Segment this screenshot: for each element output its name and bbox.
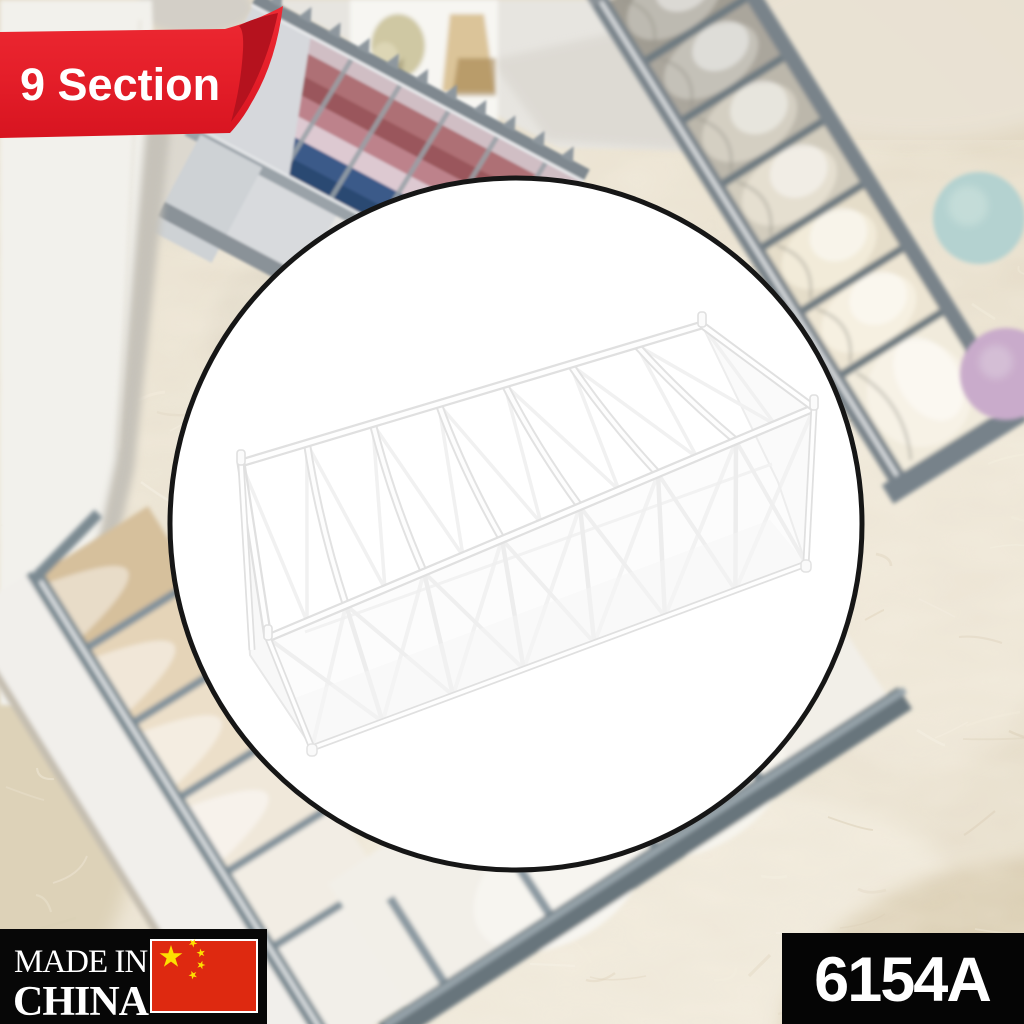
svg-text:9 Section: 9 Section <box>20 59 220 110</box>
svg-text:6154A: 6154A <box>814 945 990 1015</box>
svg-text:MADE IN: MADE IN <box>14 944 148 980</box>
svg-text:CHINA: CHINA <box>13 979 150 1024</box>
